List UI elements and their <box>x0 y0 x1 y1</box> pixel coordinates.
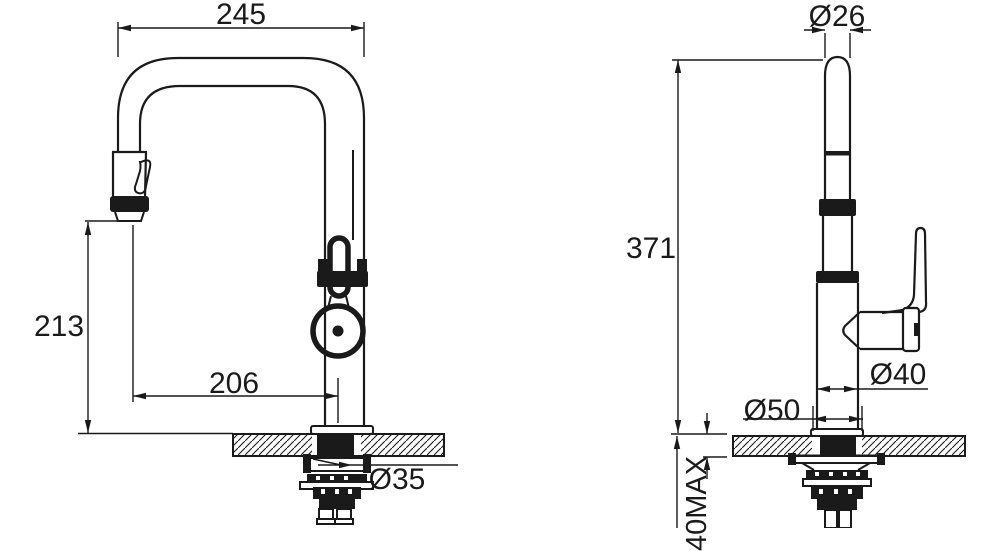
dim-213-lines <box>78 221 233 434</box>
dim-label-base-diameter: Ø50 <box>741 396 803 426</box>
handle-lever <box>916 228 926 312</box>
dim-label-max-counter-thickness: 40MAX <box>683 456 712 551</box>
side-spray-head <box>110 152 150 221</box>
side-view <box>110 58 444 524</box>
side-collar <box>317 271 368 287</box>
dim-label-shank-diameter: Ø35 <box>365 465 429 495</box>
side-body <box>311 238 373 434</box>
dim-label-body-diameter: Ø40 <box>867 360 929 390</box>
technical-drawing: 245 213 206 Ø35 Ø26 371 Ø50 Ø40 40MAX <box>0 0 999 528</box>
front-countertop <box>733 436 965 456</box>
spray-head-tip <box>115 212 144 221</box>
dim-label-spout-diameter: Ø26 <box>806 2 868 32</box>
drawing-linework <box>0 0 999 528</box>
front-handle <box>843 228 926 351</box>
dim-371-lines <box>671 60 823 434</box>
front-base-flange <box>811 429 863 436</box>
front-view <box>733 57 965 528</box>
side-countertop <box>233 434 444 456</box>
front-upper-collar <box>819 199 856 216</box>
front-body <box>811 283 863 436</box>
supply-tube <box>825 510 837 528</box>
dim-label-reach: 206 <box>209 369 259 399</box>
spray-head-hook <box>135 160 150 193</box>
front-lower-collar <box>816 271 859 283</box>
supply-tube <box>839 510 851 528</box>
side-base-flange <box>311 426 373 434</box>
spray-head-band <box>110 196 149 212</box>
dim-label-spout-height: 213 <box>34 312 84 342</box>
front-mounting-hardware <box>788 453 885 528</box>
dim-label-total-height: 371 <box>626 234 676 264</box>
front-spout-tube <box>816 57 859 283</box>
hose-loop <box>330 238 348 296</box>
side-spout-outline <box>118 58 364 272</box>
pivot-center-dot <box>333 326 344 337</box>
dim-label-spout-width: 245 <box>216 0 266 30</box>
